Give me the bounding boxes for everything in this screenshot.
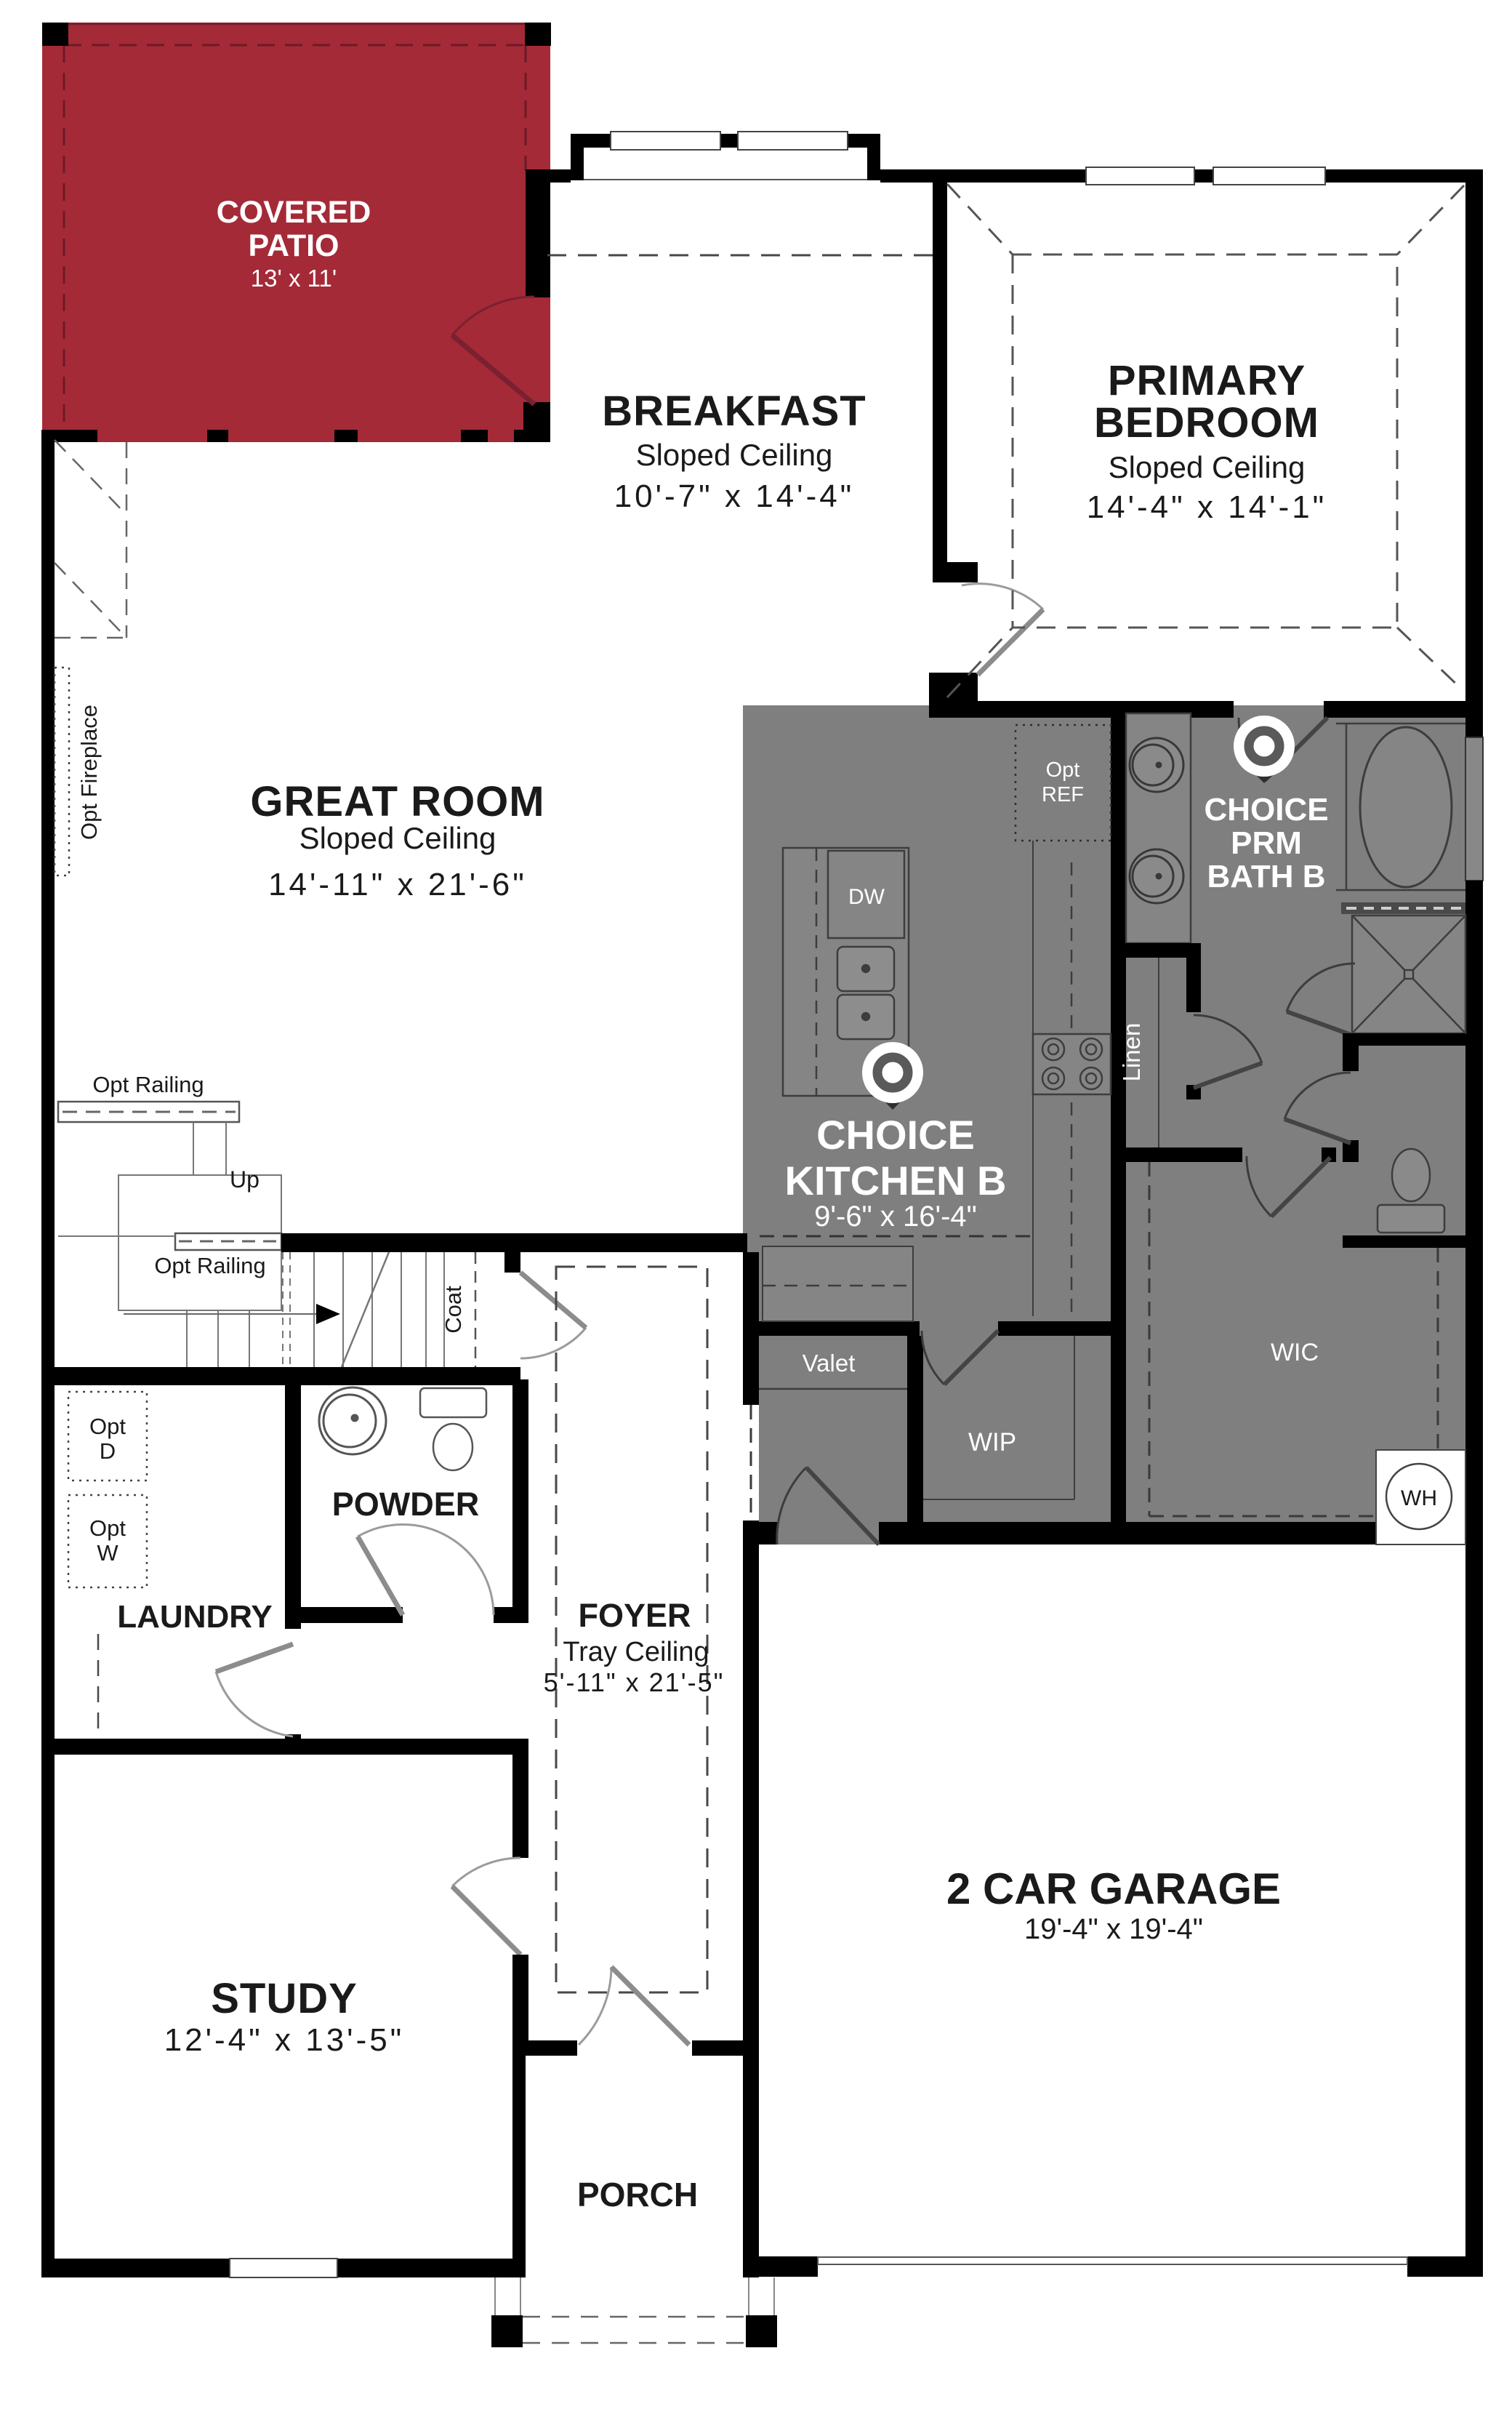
- svg-text:Sloped Ceiling: Sloped Ceiling: [299, 821, 496, 855]
- svg-text:Coat: Coat: [441, 1286, 466, 1334]
- svg-text:19'-4" x 19'-4": 19'-4" x 19'-4": [1024, 1913, 1203, 1945]
- svg-text:PATIO: PATIO: [248, 228, 339, 263]
- svg-text:BATH B: BATH B: [1207, 859, 1326, 894]
- svg-text:2 CAR GARAGE: 2 CAR GARAGE: [946, 1864, 1281, 1913]
- svg-text:Opt Railing: Opt Railing: [154, 1253, 265, 1278]
- svg-text:LAUNDRY: LAUNDRY: [117, 1599, 272, 1635]
- svg-text:Opt: Opt: [1046, 758, 1080, 782]
- svg-text:WH: WH: [1401, 1486, 1437, 1510]
- svg-text:Opt: Opt: [89, 1515, 126, 1541]
- svg-text:GREAT ROOM: GREAT ROOM: [250, 778, 544, 825]
- svg-text:10'-7" x 14'-4": 10'-7" x 14'-4": [614, 478, 855, 514]
- svg-text:KITCHEN B: KITCHEN B: [785, 1158, 1007, 1203]
- svg-text:14'-4" x 14'-1": 14'-4" x 14'-1": [1087, 489, 1327, 525]
- svg-text:W: W: [97, 1540, 118, 1566]
- svg-text:13' x 11': 13' x 11': [251, 265, 337, 292]
- svg-text:Linen: Linen: [1118, 1023, 1145, 1082]
- svg-text:PRIMARY: PRIMARY: [1108, 357, 1306, 404]
- svg-text:Sloped Ceiling: Sloped Ceiling: [636, 438, 833, 472]
- svg-text:COVERED: COVERED: [217, 195, 371, 230]
- svg-text:Valet: Valet: [803, 1350, 856, 1377]
- svg-text:STUDY: STUDY: [211, 1975, 358, 2022]
- svg-text:BREAKFAST: BREAKFAST: [602, 388, 866, 435]
- svg-text:Up: Up: [230, 1166, 260, 1193]
- svg-text:14'-11" x 21'-6": 14'-11" x 21'-6": [268, 867, 527, 902]
- svg-text:Opt Railing: Opt Railing: [92, 1072, 204, 1097]
- svg-text:WIC: WIC: [1271, 1339, 1319, 1366]
- svg-text:9'-6" x 16'-4": 9'-6" x 16'-4": [814, 1201, 977, 1233]
- svg-text:Sloped Ceiling: Sloped Ceiling: [1109, 450, 1306, 484]
- svg-text:Tray Ceiling: Tray Ceiling: [563, 1637, 709, 1667]
- svg-text:D: D: [100, 1438, 116, 1464]
- svg-text:PORCH: PORCH: [577, 2176, 698, 2213]
- svg-text:WIP: WIP: [968, 1428, 1016, 1457]
- svg-text:CHOICE: CHOICE: [1204, 792, 1328, 828]
- svg-text:Opt: Opt: [89, 1414, 126, 1439]
- svg-text:5'-11" x 21'-5": 5'-11" x 21'-5": [544, 1667, 725, 1697]
- svg-text:FOYER: FOYER: [578, 1597, 691, 1634]
- svg-text:POWDER: POWDER: [332, 1486, 480, 1523]
- svg-text:DW: DW: [848, 885, 885, 909]
- svg-text:12'-4" x 13'-5": 12'-4" x 13'-5": [164, 2022, 405, 2058]
- svg-text:BEDROOM: BEDROOM: [1094, 399, 1319, 446]
- svg-text:REF: REF: [1042, 783, 1084, 806]
- svg-text:CHOICE: CHOICE: [816, 1112, 975, 1158]
- svg-text:Opt Fireplace: Opt Fireplace: [76, 705, 102, 840]
- svg-text:PRM: PRM: [1231, 825, 1302, 861]
